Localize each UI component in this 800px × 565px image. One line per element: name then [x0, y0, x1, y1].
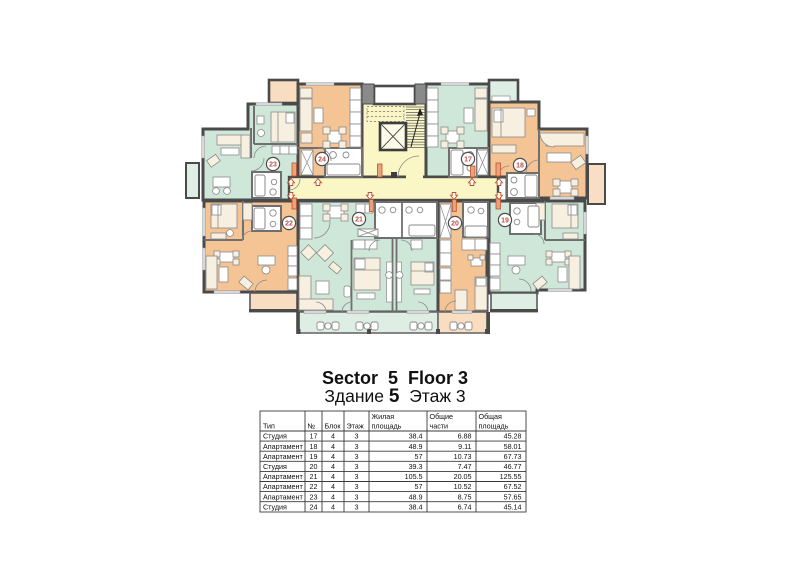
svg-text:Апартамент: Апартамент — [263, 452, 303, 461]
svg-text:57.65: 57.65 — [504, 492, 522, 501]
svg-text:3: 3 — [355, 492, 359, 501]
svg-text:22: 22 — [285, 221, 293, 228]
svg-text:58.01: 58.01 — [504, 442, 522, 451]
svg-text:части: части — [430, 422, 449, 431]
svg-text:Жилая: Жилая — [372, 412, 395, 421]
svg-text:4: 4 — [331, 462, 335, 471]
svg-text:24: 24 — [318, 157, 326, 164]
svg-text:24: 24 — [310, 502, 318, 511]
svg-text:48.9: 48.9 — [409, 492, 423, 501]
svg-text:Общие: Общие — [430, 412, 454, 421]
svg-text:67.52: 67.52 — [504, 482, 522, 491]
svg-text:39.3: 39.3 — [409, 462, 423, 471]
svg-text:6.74: 6.74 — [458, 502, 472, 511]
svg-text:45.14: 45.14 — [504, 502, 522, 511]
svg-text:38.4: 38.4 — [409, 502, 423, 511]
svg-text:46.77: 46.77 — [504, 462, 522, 471]
svg-text:4: 4 — [331, 472, 335, 481]
svg-text:20: 20 — [310, 462, 318, 471]
svg-text:Sector 5 Floor 3: Sector 5 Floor 3 — [322, 368, 468, 388]
svg-text:125.55: 125.55 — [500, 472, 522, 481]
svg-text:19: 19 — [310, 452, 318, 461]
svg-text:Этаж: Этаж — [347, 422, 364, 431]
svg-text:площадь: площадь — [479, 422, 509, 431]
svg-text:Апартамент: Апартамент — [263, 472, 303, 481]
svg-text:7.47: 7.47 — [458, 462, 472, 471]
svg-text:38.4: 38.4 — [409, 432, 423, 441]
svg-text:4: 4 — [331, 502, 335, 511]
svg-text:№: № — [308, 422, 316, 431]
svg-text:3: 3 — [355, 502, 359, 511]
svg-text:10.52: 10.52 — [454, 482, 472, 491]
svg-text:6.88: 6.88 — [458, 432, 472, 441]
svg-text:Студия: Студия — [263, 462, 287, 471]
svg-text:Тип: Тип — [263, 422, 275, 431]
svg-text:3: 3 — [355, 472, 359, 481]
svg-text:18: 18 — [516, 163, 524, 170]
svg-text:3: 3 — [355, 462, 359, 471]
svg-text:17: 17 — [310, 432, 318, 441]
svg-text:3: 3 — [355, 452, 359, 461]
svg-text:10.73: 10.73 — [454, 452, 472, 461]
svg-text:48.9: 48.9 — [409, 442, 423, 451]
svg-text:20: 20 — [451, 221, 459, 228]
svg-text:3: 3 — [355, 482, 359, 491]
svg-text:Апартамент: Апартамент — [263, 482, 303, 491]
svg-text:Блок: Блок — [325, 422, 342, 431]
svg-text:8.75: 8.75 — [458, 492, 472, 501]
svg-text:Студия: Студия — [263, 502, 287, 511]
svg-text:22: 22 — [310, 482, 318, 491]
svg-text:4: 4 — [331, 432, 335, 441]
svg-text:57: 57 — [415, 482, 423, 491]
svg-text:21: 21 — [310, 472, 318, 481]
svg-text:Апартамент: Апартамент — [263, 442, 303, 451]
svg-text:21: 21 — [355, 217, 363, 224]
svg-text:23: 23 — [269, 162, 277, 169]
svg-text:3: 3 — [355, 432, 359, 441]
svg-text:57: 57 — [415, 452, 423, 461]
svg-text:3: 3 — [355, 442, 359, 451]
svg-text:67.73: 67.73 — [504, 452, 522, 461]
svg-text:Здание 5 Этаж 3: Здание 5 Этаж 3 — [324, 386, 465, 407]
svg-text:19: 19 — [501, 218, 509, 225]
svg-text:4: 4 — [331, 452, 335, 461]
svg-text:105.5: 105.5 — [405, 472, 423, 481]
svg-text:20.05: 20.05 — [454, 472, 472, 481]
svg-text:4: 4 — [331, 492, 335, 501]
svg-text:9.11: 9.11 — [458, 442, 471, 451]
svg-text:45.28: 45.28 — [504, 432, 522, 441]
svg-text:Общая: Общая — [479, 412, 503, 421]
svg-text:23: 23 — [310, 492, 318, 501]
svg-text:Студия: Студия — [263, 432, 287, 441]
svg-text:17: 17 — [464, 157, 472, 164]
svg-text:4: 4 — [331, 482, 335, 491]
svg-text:4: 4 — [331, 442, 335, 451]
svg-text:площадь: площадь — [372, 422, 402, 431]
svg-text:Апартамент: Апартамент — [263, 492, 303, 501]
svg-text:18: 18 — [310, 442, 318, 451]
